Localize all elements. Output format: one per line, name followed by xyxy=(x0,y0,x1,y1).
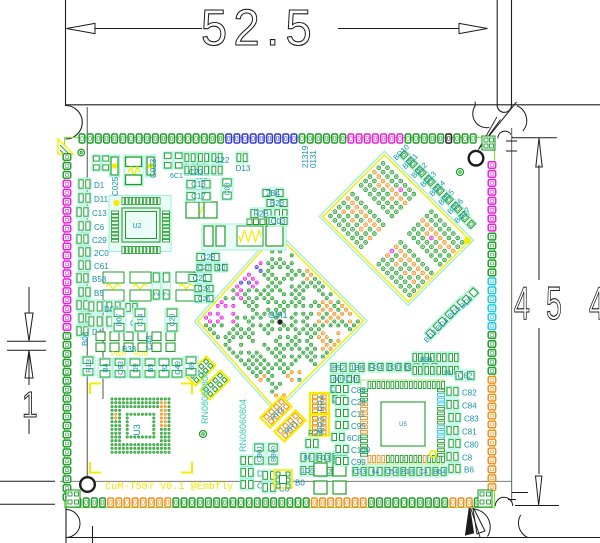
svg-text:91: 91 xyxy=(444,370,452,377)
svg-text:C82: C82 xyxy=(462,389,477,398)
svg-text:PWR: PWR xyxy=(111,351,126,358)
svg-text:C54: C54 xyxy=(385,469,398,476)
svg-text:R13: R13 xyxy=(317,455,330,462)
svg-text:5: 5 xyxy=(546,278,562,330)
svg-text:C03: C03 xyxy=(271,217,286,226)
svg-text:B92: B92 xyxy=(332,363,345,372)
svg-text:R2B: R2B xyxy=(253,209,269,218)
svg-text:B30: B30 xyxy=(387,363,400,372)
svg-text:BB00: BB00 xyxy=(270,446,277,462)
svg-text:D13: D13 xyxy=(236,164,251,173)
svg-text:B6: B6 xyxy=(464,466,474,475)
svg-text:1: 1 xyxy=(22,385,38,425)
svg-text:CuM-T507 V0.1 @Embfly: CuM-T507 V0.1 @Embfly xyxy=(105,481,233,493)
svg-text:C49: C49 xyxy=(173,361,182,375)
svg-text:C10: C10 xyxy=(346,375,360,384)
svg-text:C99: C99 xyxy=(351,458,366,467)
svg-text:B9: B9 xyxy=(146,363,155,372)
svg-text:C13: C13 xyxy=(191,180,206,189)
svg-text:C28: C28 xyxy=(351,398,366,407)
svg-text:C62: C62 xyxy=(458,371,473,380)
svg-text:C03: C03 xyxy=(224,183,231,196)
svg-text:U3: U3 xyxy=(132,424,142,436)
svg-text:C025: C025 xyxy=(111,176,120,196)
svg-text:CB01: CB01 xyxy=(256,445,263,462)
svg-text:C80: C80 xyxy=(464,441,479,450)
svg-text:C0: C0 xyxy=(217,265,226,272)
svg-text:R28: R28 xyxy=(308,429,323,438)
svg-text:C24: C24 xyxy=(198,286,211,293)
svg-text:4: 4 xyxy=(514,278,530,330)
svg-text:6C1: 6C1 xyxy=(170,173,183,180)
svg-text:C4: C4 xyxy=(419,469,428,476)
svg-text:52.5: 52.5 xyxy=(201,0,318,56)
svg-text:92: 92 xyxy=(160,364,169,372)
svg-text:C95: C95 xyxy=(351,422,366,431)
svg-text:C14: C14 xyxy=(137,314,144,327)
svg-text:C109: C109 xyxy=(351,446,371,455)
svg-text:D11: D11 xyxy=(94,195,109,204)
svg-text:RN08060804: RN08060804 xyxy=(200,371,210,424)
svg-text:C33: C33 xyxy=(353,469,366,476)
svg-text:R34: R34 xyxy=(369,363,383,372)
svg-text:C023: C023 xyxy=(149,158,158,178)
svg-text:B6: B6 xyxy=(303,455,312,462)
svg-text:B18: B18 xyxy=(401,469,414,476)
svg-text:C28: C28 xyxy=(201,253,216,262)
svg-text:U5: U5 xyxy=(399,422,407,428)
svg-text:B03: B03 xyxy=(81,331,90,346)
svg-text:B0: B0 xyxy=(295,479,305,488)
svg-text:RR4: RR4 xyxy=(317,395,326,412)
svg-text:C29: C29 xyxy=(92,236,107,245)
svg-text:4: 4 xyxy=(589,278,600,330)
svg-text:C23: C23 xyxy=(189,168,204,177)
svg-text:B64: B64 xyxy=(433,469,446,476)
svg-text:1C6: 1C6 xyxy=(301,468,314,475)
svg-text:C8: C8 xyxy=(462,454,473,463)
svg-text:1B8: 1B8 xyxy=(350,363,363,372)
svg-text:B58: B58 xyxy=(92,275,107,284)
svg-text:2B4: 2B4 xyxy=(266,189,281,198)
svg-text:C84: C84 xyxy=(462,402,477,411)
svg-text:B5: B5 xyxy=(94,289,104,298)
svg-text:RN08060804: RN08060804 xyxy=(238,399,248,452)
svg-text:69: 69 xyxy=(187,362,196,370)
svg-text:R4: R4 xyxy=(101,363,110,373)
svg-text:B39: B39 xyxy=(420,357,433,364)
svg-text:80: 80 xyxy=(333,375,341,384)
svg-text:C22: C22 xyxy=(215,156,230,165)
svg-text:C11: C11 xyxy=(351,410,366,419)
svg-text:B23: B23 xyxy=(270,199,285,208)
svg-text:R13: R13 xyxy=(84,359,93,373)
svg-text:D1: D1 xyxy=(94,181,105,190)
svg-text:C21: C21 xyxy=(193,274,208,283)
svg-text:0131: 0131 xyxy=(309,150,318,168)
svg-text:2C0: 2C0 xyxy=(94,249,109,258)
svg-text:RUN: RUN xyxy=(134,351,148,358)
svg-text:U2: U2 xyxy=(133,223,142,230)
svg-text:C17: C17 xyxy=(191,192,206,201)
svg-text:C13: C13 xyxy=(92,209,107,218)
svg-text:C26: C26 xyxy=(198,296,211,303)
svg-text:64: 64 xyxy=(372,469,380,476)
svg-text:2: 2 xyxy=(154,292,161,296)
svg-text:GM1: GM1 xyxy=(268,310,288,320)
svg-text:C27: C27 xyxy=(198,265,211,272)
svg-text:C6: C6 xyxy=(94,223,105,232)
svg-text:D07: D07 xyxy=(116,313,123,326)
svg-text:7: 7 xyxy=(164,292,171,296)
svg-text:C61: C61 xyxy=(94,262,109,271)
svg-text:C20: C20 xyxy=(169,314,176,327)
svg-text:D9: D9 xyxy=(131,363,140,373)
svg-text:C83: C83 xyxy=(464,415,479,424)
svg-text:C93: C93 xyxy=(116,361,125,375)
svg-text:6C8: 6C8 xyxy=(347,434,362,443)
svg-text:C88: C88 xyxy=(351,386,366,395)
svg-text:C81: C81 xyxy=(462,428,477,437)
svg-text:C48: C48 xyxy=(145,335,154,350)
